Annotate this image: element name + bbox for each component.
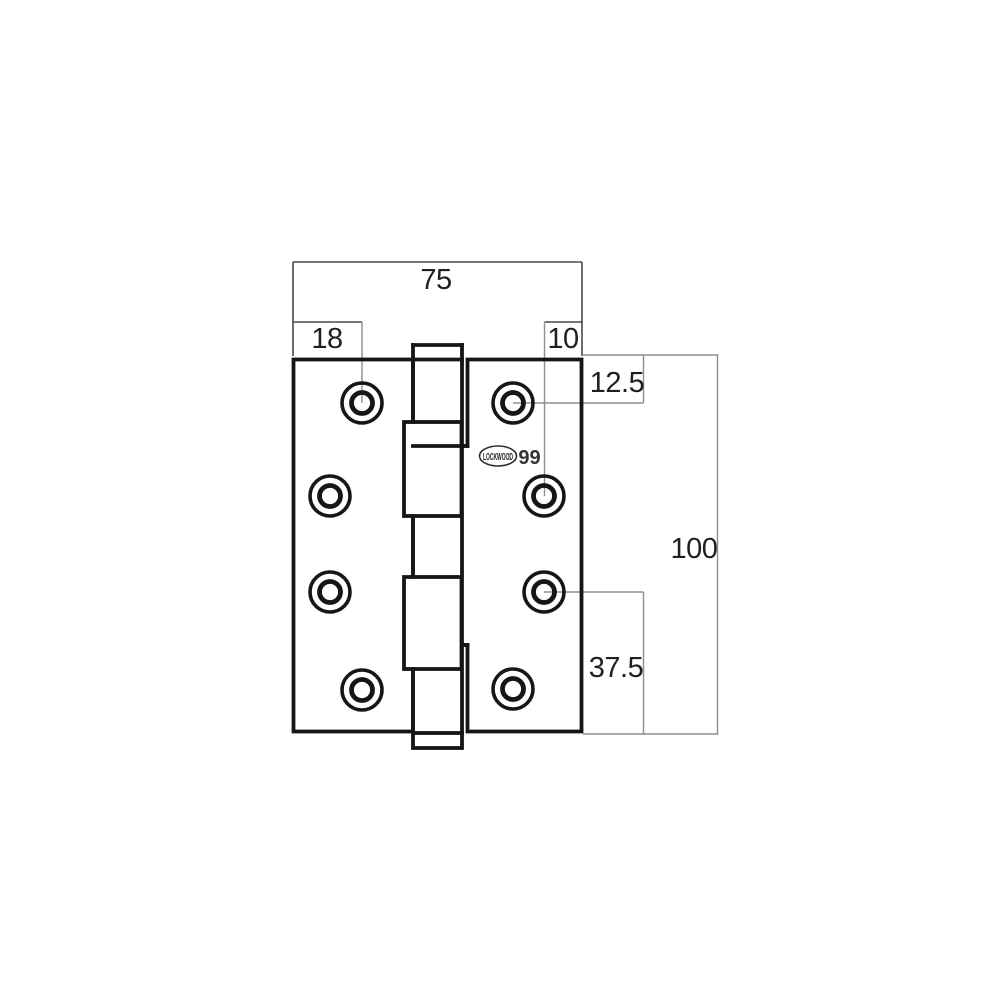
- screw-hole-inner: [503, 679, 524, 700]
- barrel-bottom-cap: [413, 733, 462, 748]
- page-background: LOCKWOOD 99 75 18 10 12.5 100 37.5: [0, 0, 1000, 1000]
- screw-hole-outer: [310, 476, 350, 516]
- hinge-technical-drawing: LOCKWOOD 99 75 18 10 12.5 100 37.5: [0, 0, 1000, 1000]
- dimension-lines-right: [362, 322, 719, 734]
- screw-hole-left-3: [310, 572, 350, 612]
- screw-hole-outer: [493, 669, 533, 709]
- model-number: 99: [518, 447, 540, 469]
- dimension-label-overall-height: 100: [671, 533, 718, 565]
- screw-hole-inner: [320, 582, 341, 603]
- dimension-label-hole-to-bottom: 37.5: [589, 652, 643, 684]
- dimension-labels: 75 18 10 12.5 100 37.5: [311, 264, 717, 684]
- right-leaf: [462, 360, 582, 732]
- dimension-label-left-edge-to-hole: 18: [311, 323, 342, 355]
- screw-hole-outer: [342, 670, 382, 710]
- screw-hole-right-4: [493, 669, 533, 709]
- dimension-label-overall-width: 75: [420, 264, 451, 296]
- barrel-knuckle-offset-upper: [404, 422, 462, 516]
- screw-hole-left-4: [342, 670, 382, 710]
- dimension-label-right-edge-to-hole: 10: [547, 323, 578, 355]
- dimension-label-top-edge-to-hole: 12.5: [590, 367, 644, 399]
- screw-hole-outer: [310, 572, 350, 612]
- left-leaf: [294, 360, 414, 732]
- screw-hole-inner: [352, 680, 373, 701]
- brand-logo: LOCKWOOD 99: [480, 446, 541, 469]
- screw-hole-left-2: [310, 476, 350, 516]
- brand-logo-text: LOCKWOOD: [483, 452, 513, 463]
- hinge-body: [294, 345, 582, 748]
- barrel-knuckle-offset-lower: [404, 577, 462, 669]
- screw-hole-inner: [320, 486, 341, 507]
